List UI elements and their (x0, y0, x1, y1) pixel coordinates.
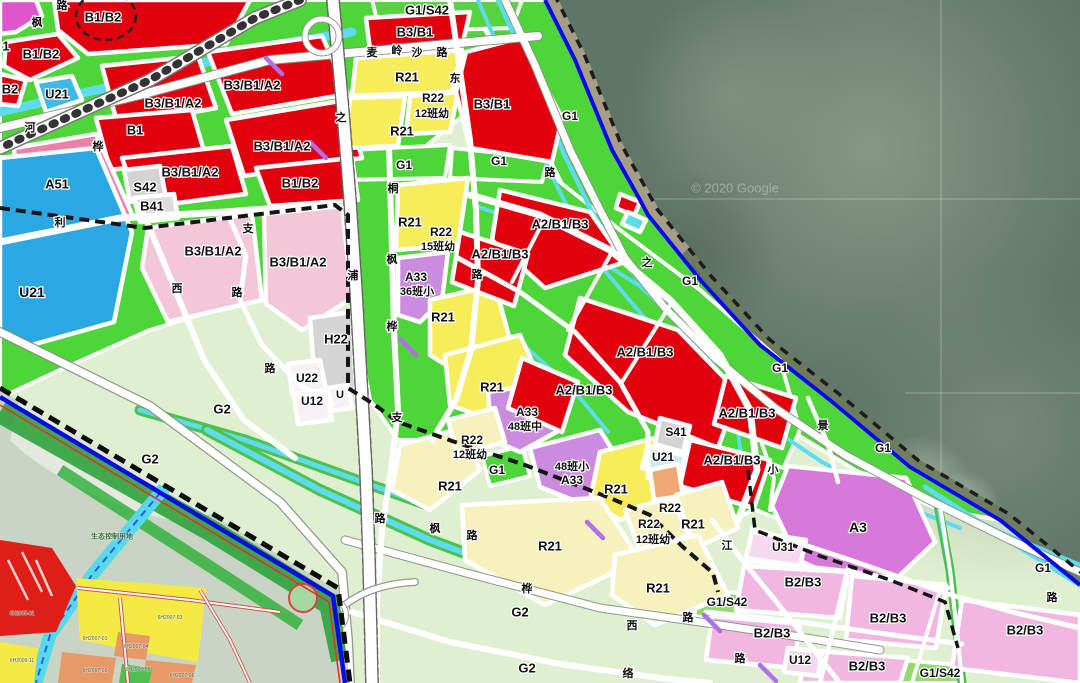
map-label: 沙 (412, 46, 423, 59)
map-label: R22 (638, 517, 660, 531)
map-label: 6H2005-01 (10, 611, 35, 617)
map-label: 48班中 (508, 419, 542, 433)
map-label: G1 (772, 361, 788, 375)
map-label: U (336, 389, 344, 401)
map-label: 路 (1047, 590, 1059, 604)
map-label: R21 (480, 380, 504, 395)
map-label: 桐 (388, 181, 399, 195)
map-label: 麦 (367, 45, 379, 59)
map-label: 12班幼 (453, 447, 487, 461)
map-label: G2 (511, 605, 528, 620)
map-label: R21 (538, 539, 562, 554)
map-label: G1 (875, 441, 891, 455)
map-label: A2/B1/B3 (555, 383, 612, 398)
map-label: G1 (491, 154, 507, 168)
map-label: 路 (545, 165, 557, 179)
map-label: U31 (772, 540, 794, 554)
map-label: 枫 (430, 521, 441, 535)
map-label: 江 (722, 538, 733, 552)
map-label: S42 (133, 180, 156, 195)
map-label: B1 (127, 123, 144, 138)
map-label: 6H2007-03 (158, 615, 183, 621)
map-label: R21 (681, 517, 705, 532)
map-label: U21 (45, 87, 69, 102)
map-label: R21 (431, 310, 455, 325)
map-label: 西 (172, 282, 183, 295)
map-label: 枫 (32, 15, 43, 29)
map-label: G1/S42 (707, 595, 748, 609)
map-label: R21 (604, 482, 628, 497)
map-label: B1/B2 (282, 176, 319, 191)
map-label: B3/B1/A2 (269, 255, 326, 270)
map-label: B1/B2 (85, 10, 122, 25)
map-label: U21 (652, 450, 674, 464)
map-label: 小 (767, 462, 779, 476)
map-label: 之 (642, 255, 653, 269)
map-label: 支 (242, 221, 255, 235)
map-label: 桦 (386, 319, 398, 333)
map-label: 桦 (521, 581, 533, 595)
map-label: B3/B1/A2 (144, 96, 201, 111)
map-label: G1/S42 (405, 3, 449, 18)
map-label: R21 (398, 215, 422, 230)
map-label: G1 (396, 158, 412, 172)
map-label: A33 (561, 473, 583, 487)
zoning-map-svg: B1/B21B1/B2B2U21B3/B1/A2B3/B1/A2B1B3/B1/… (0, 0, 1080, 683)
map-label: G2 (518, 661, 535, 676)
map-label: B2/B3 (849, 659, 886, 674)
map-label: 路 (467, 528, 479, 542)
map-label: B3/B1/A2 (223, 78, 280, 93)
map-label: B3/B1/A2 (161, 165, 218, 180)
map-label: U22 (296, 371, 318, 385)
map-label: 15班幼 (421, 239, 455, 253)
map-label: 6H2009-11 (10, 658, 35, 664)
map-label: 6H2005-06 (126, 667, 151, 673)
map-label: A3 (849, 519, 867, 535)
map-label: 路 (472, 267, 484, 281)
map-label: R21 (646, 581, 670, 596)
zoning-map: B1/B21B1/B2B2U21B3/B1/A2B3/B1/A2B1B3/B1/… (0, 0, 1080, 683)
map-label: G1 (1035, 561, 1051, 575)
map-label: B2/B3 (1007, 623, 1044, 638)
map-label: R22 (659, 501, 681, 515)
map-label: 6H2007-04 (124, 644, 149, 650)
map-label: 路 (683, 610, 695, 624)
map-label: B3/B1/A2 (253, 139, 310, 154)
map-label: B2 (2, 82, 19, 97)
map-label: 路 (437, 45, 449, 59)
map-label: R21 (438, 479, 462, 494)
watermark-text: © 2020 Google (691, 181, 779, 196)
map-label: 生态控制用地 (91, 531, 133, 540)
map-label: R22 (422, 91, 444, 105)
map-label: A2/B1/B3 (703, 453, 760, 468)
map-label: R21 (390, 124, 414, 139)
map-label: 利 (55, 215, 66, 229)
map-label: G1/S42 (920, 666, 961, 680)
map-label: H22 (324, 332, 348, 347)
map-label: U12 (301, 394, 323, 408)
map-label: G1 (489, 463, 505, 477)
map-label: 桦 (92, 139, 104, 153)
map-label: 1 (2, 39, 9, 54)
map-label: A33 (405, 270, 427, 284)
map-label: 12班幼 (636, 532, 670, 546)
map-label: 6H2007-06 (170, 673, 195, 679)
map-label: 西 (627, 619, 638, 632)
map-label: 路 (735, 651, 747, 665)
map-label: U21 (19, 284, 45, 300)
map-label: R22 (461, 433, 483, 447)
map-label: A2/B1/B3 (471, 247, 528, 262)
map-label: R22 (430, 225, 452, 239)
map-label: 枫 (387, 252, 398, 266)
map-label: 络 (623, 666, 634, 680)
map-label: B3/B1 (397, 25, 434, 40)
map-label: 路 (375, 511, 387, 525)
map-label: 之 (336, 110, 347, 124)
map-label: 路 (265, 361, 277, 375)
map-label: A51 (45, 177, 69, 192)
map-label: 岭 (392, 43, 403, 57)
map-label: 河 (25, 120, 36, 134)
map-label: 12班幼 (415, 106, 449, 120)
map-label: B41 (140, 199, 164, 214)
map-label: G1 (682, 274, 698, 288)
map-label: 路 (57, 0, 69, 12)
map-label: G1 (562, 109, 578, 123)
map-label: B2/B3 (785, 575, 822, 590)
map-label: A33 (516, 405, 538, 419)
map-label: S41 (665, 425, 687, 439)
map-label: G2 (141, 452, 158, 467)
map-label: 48班小 (555, 459, 589, 473)
map-label: 6H2007-01 (83, 636, 108, 642)
map-label: 景 (817, 419, 829, 432)
map-label: B2/B3 (754, 626, 791, 641)
map-label: B3/B1 (474, 97, 511, 112)
map-label: B1/B2 (23, 47, 60, 62)
map-label: R21 (395, 70, 419, 85)
map-label: 36班小 (400, 284, 434, 298)
map-label: B3/B1/A2 (184, 244, 241, 259)
map-label: 6H2007-02 (83, 668, 108, 674)
map-label: A2/B1/B3 (531, 217, 588, 232)
parcel-r21 (344, 96, 405, 148)
map-label: A2/B1/B3 (718, 406, 775, 421)
map-label: 路 (232, 285, 244, 299)
map-label: 浦 (348, 268, 359, 282)
map-label: G2 (213, 402, 230, 417)
map-label: 支 (391, 410, 404, 424)
map-label: A2/B1/B3 (616, 345, 673, 360)
map-label: B2/B3 (870, 611, 907, 626)
map-label: 东 (450, 71, 461, 85)
map-label: U12 (789, 653, 811, 667)
